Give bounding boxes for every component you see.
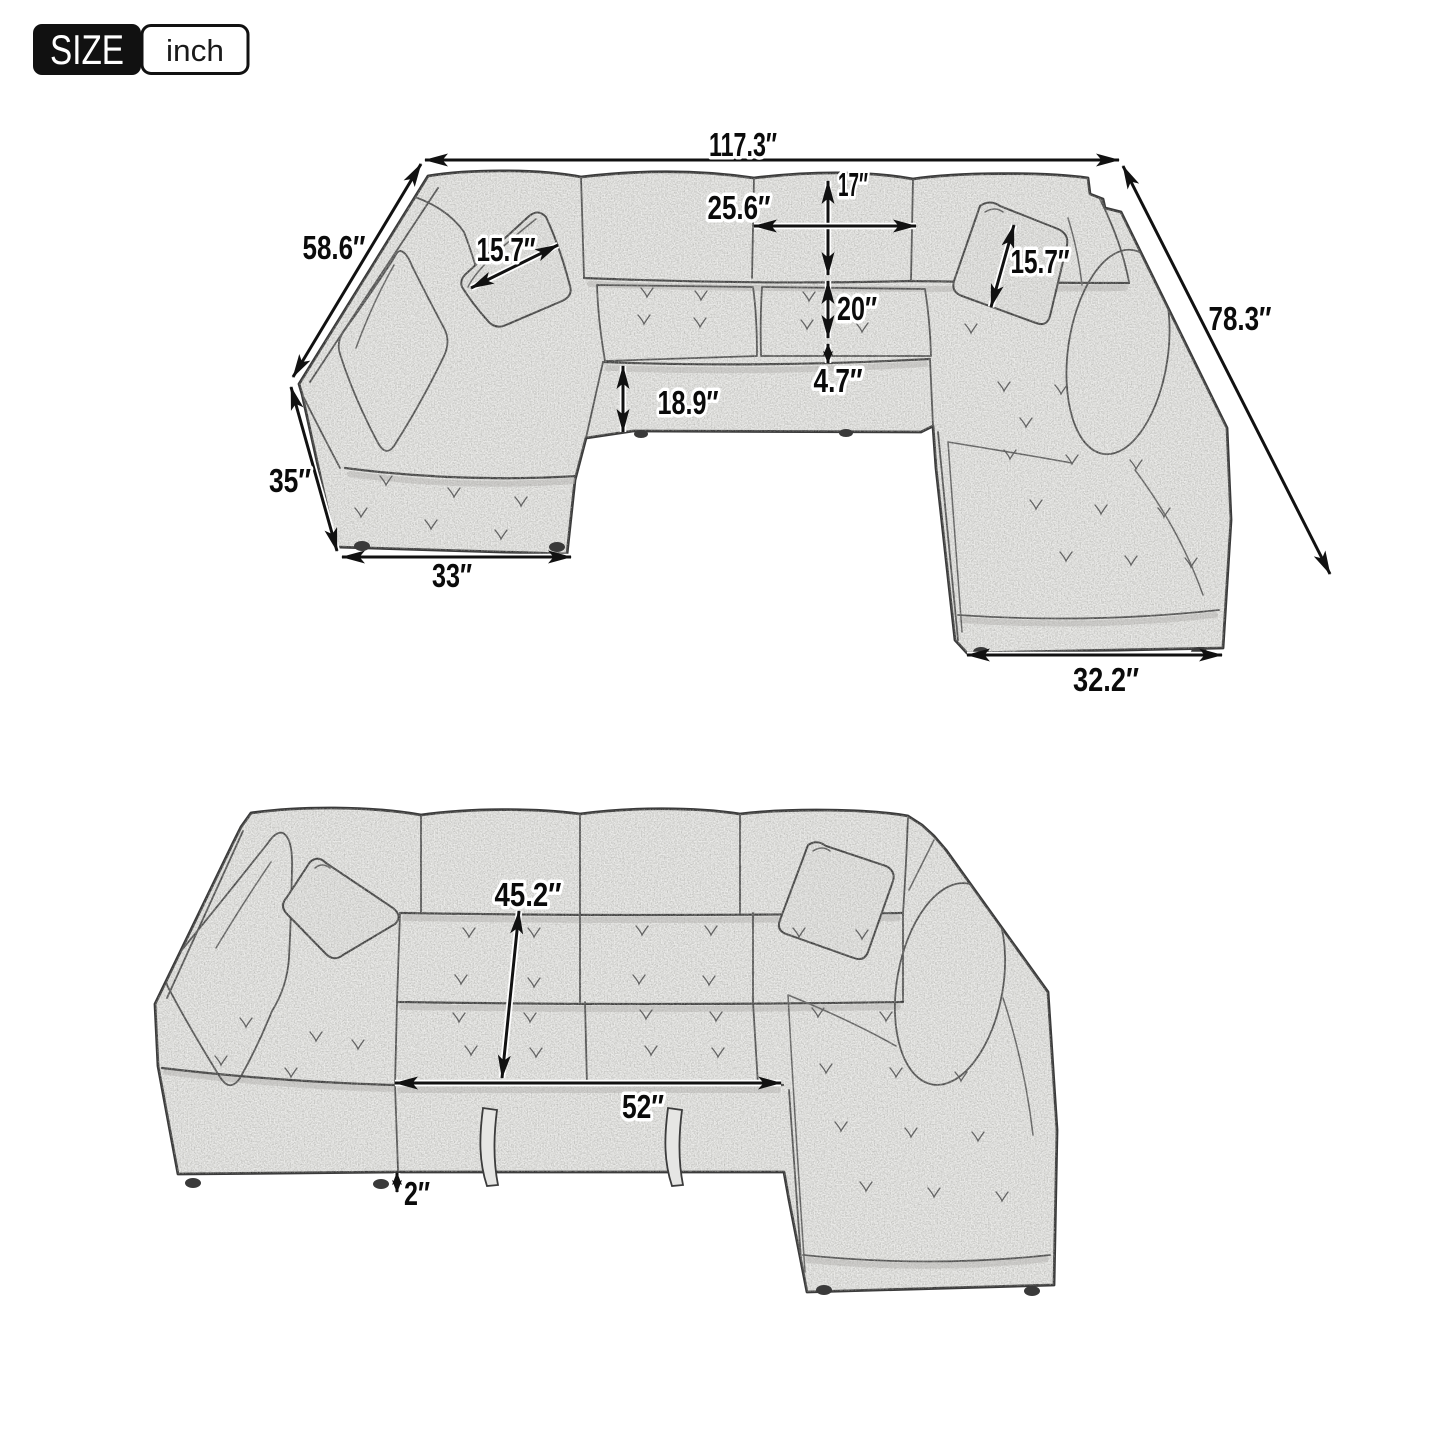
svg-text:58.6″: 58.6″ (303, 229, 366, 266)
svg-text:inch: inch (166, 33, 224, 68)
svg-text:35″: 35″ (269, 462, 311, 499)
svg-text:20″: 20″ (837, 290, 877, 327)
svg-text:33″: 33″ (432, 557, 472, 594)
svg-text:4.7″: 4.7″ (814, 362, 863, 399)
svg-text:17″: 17″ (838, 166, 868, 203)
svg-text:15.7″: 15.7″ (1011, 243, 1070, 280)
svg-text:15.7″: 15.7″ (477, 231, 536, 268)
svg-text:25.6″: 25.6″ (708, 189, 771, 226)
svg-text:32.2″: 32.2″ (1073, 661, 1139, 698)
svg-text:117.3″: 117.3″ (709, 126, 777, 163)
svg-text:45.2″: 45.2″ (495, 876, 562, 913)
svg-text:18.9″: 18.9″ (658, 384, 719, 421)
svg-text:52″: 52″ (622, 1088, 664, 1125)
svg-text:78.3″: 78.3″ (1209, 300, 1272, 337)
svg-text:SIZE: SIZE (50, 26, 124, 73)
svg-text:2″: 2″ (404, 1175, 430, 1212)
